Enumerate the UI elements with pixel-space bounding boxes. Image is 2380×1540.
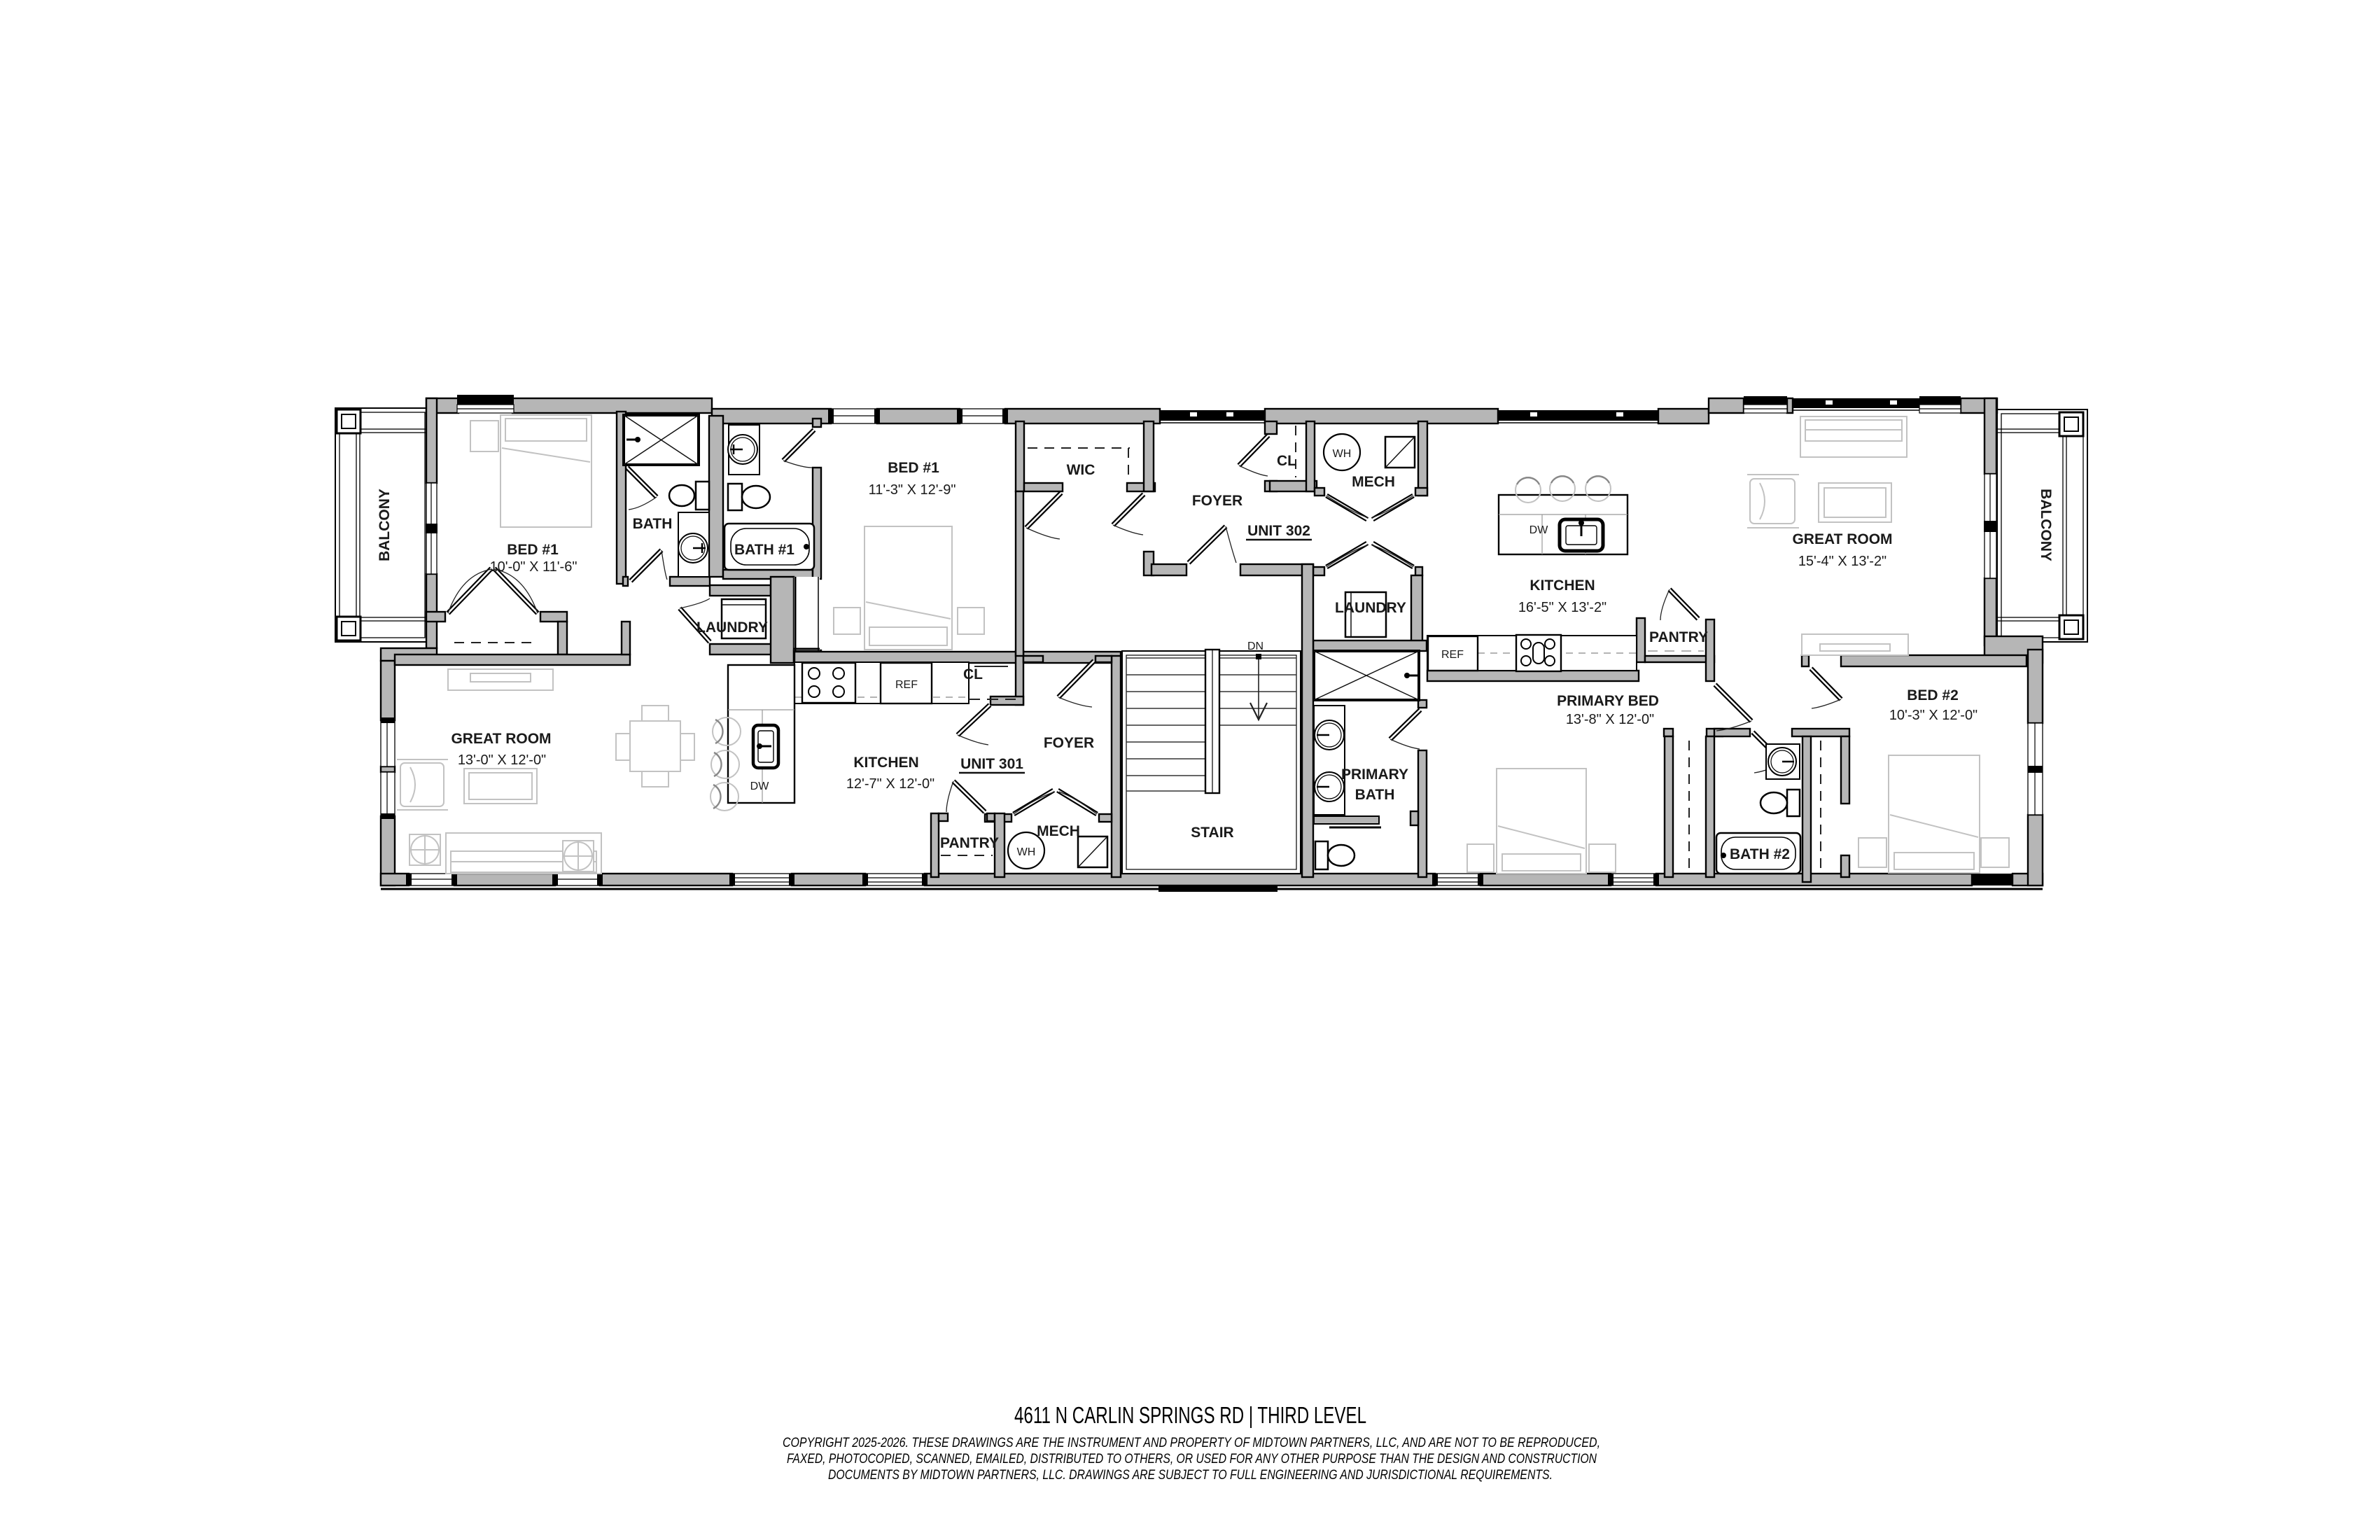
- svg-text:BALCONY: BALCONY: [2038, 489, 2054, 561]
- svg-text:16'-5" X 13'-2": 16'-5" X 13'-2": [1518, 600, 1606, 615]
- svg-text:STAIR: STAIR: [1191, 825, 1233, 841]
- svg-text:KITCHEN: KITCHEN: [853, 755, 918, 771]
- svg-text:DW: DW: [750, 780, 770, 792]
- svg-text:PRIMARY BED: PRIMARY BED: [1557, 693, 1659, 709]
- svg-text:BALCONY: BALCONY: [377, 489, 393, 561]
- svg-text:DN: DN: [1247, 640, 1263, 652]
- svg-text:DW: DW: [1529, 524, 1549, 536]
- svg-text:LAUNDRY: LAUNDRY: [696, 619, 768, 636]
- svg-text:10'-3" X 12'-0": 10'-3" X 12'-0": [1889, 708, 1977, 723]
- svg-text:BATH #2: BATH #2: [1730, 846, 1790, 862]
- svg-text:COPYRIGHT 2025-2026. THESE DR: COPYRIGHT 2025-2026. THESE DRAWINGS ARE …: [783, 1436, 1600, 1450]
- svg-text:BATH #1: BATH #1: [734, 542, 794, 558]
- svg-text:GREAT ROOM: GREAT ROOM: [1792, 531, 1892, 547]
- svg-text:FOYER: FOYER: [1192, 493, 1242, 509]
- svg-text:15'-4" X 13'-2": 15'-4" X 13'-2": [1798, 554, 1886, 569]
- svg-text:PANTRY: PANTRY: [940, 835, 999, 851]
- svg-text:CL: CL: [963, 666, 983, 682]
- svg-text:UNIT 302: UNIT 302: [1247, 523, 1310, 539]
- svg-text:PRIMARY: PRIMARY: [1341, 766, 1408, 783]
- svg-text:CL: CL: [1277, 453, 1296, 469]
- svg-text:MECH: MECH: [1037, 823, 1080, 839]
- svg-text:REF: REF: [1441, 649, 1464, 661]
- svg-text:DOCUMENTS BY MIDTOWN PARTNERS,: DOCUMENTS BY MIDTOWN PARTNERS, LLC. DRAW…: [828, 1468, 1553, 1483]
- svg-text:KITCHEN: KITCHEN: [1529, 577, 1595, 594]
- svg-text:12'-7" X 12'-0": 12'-7" X 12'-0": [846, 776, 934, 792]
- svg-text:MECH: MECH: [1352, 474, 1395, 490]
- svg-text:WH: WH: [1017, 846, 1036, 858]
- svg-text:GREAT ROOM: GREAT ROOM: [451, 731, 551, 747]
- svg-text:13'-8" X 12'-0": 13'-8" X 12'-0": [1566, 712, 1654, 727]
- svg-text:BATH: BATH: [633, 516, 673, 532]
- svg-text:LAUNDRY: LAUNDRY: [1335, 600, 1406, 616]
- svg-text:13'-0" X 12'-0": 13'-0" X 12'-0": [458, 752, 546, 768]
- svg-text:4611 N CARLIN SPRINGS RD | THI: 4611 N CARLIN SPRINGS RD | THIRD LEVEL: [1014, 1402, 1366, 1428]
- svg-text:BATH: BATH: [1355, 787, 1395, 803]
- svg-text:PANTRY: PANTRY: [1649, 629, 1708, 645]
- svg-text:WIC: WIC: [1067, 462, 1095, 478]
- svg-text:BED #1: BED #1: [888, 460, 939, 476]
- svg-text:BED #2: BED #2: [1907, 687, 1959, 703]
- svg-text:FAXED, PHOTOCOPIED, SCANNED, E: FAXED, PHOTOCOPIED, SCANNED, EMAILED, DI…: [787, 1452, 1597, 1466]
- svg-text:FOYER: FOYER: [1044, 735, 1094, 751]
- svg-text:11'-3" X 12'-9": 11'-3" X 12'-9": [869, 482, 956, 498]
- svg-text:UNIT 301: UNIT 301: [960, 756, 1023, 772]
- svg-text:REF: REF: [895, 679, 918, 691]
- svg-text:BED #1: BED #1: [507, 542, 559, 558]
- svg-text:WH: WH: [1333, 448, 1352, 460]
- svg-text:10'-0" X 11'-6": 10'-0" X 11'-6": [490, 559, 577, 575]
